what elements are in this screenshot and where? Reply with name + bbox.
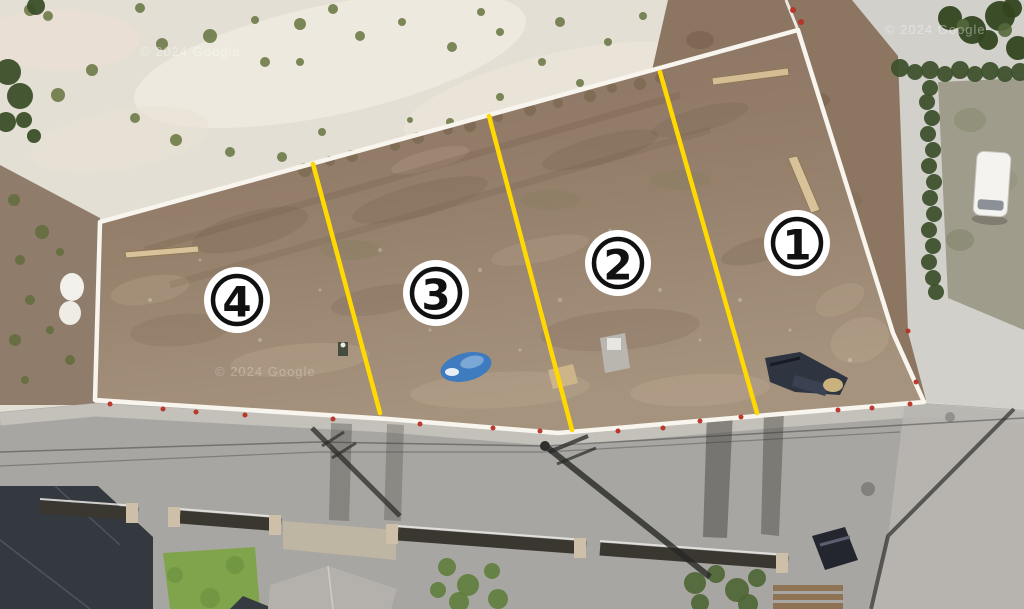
aerial-photo-canvas: 1 2 3 4 © 2024 Google © 2024 Google © 20… <box>0 0 1024 609</box>
google-watermark: © 2024 Google <box>885 22 986 37</box>
plot-marker-4: 4 <box>204 267 270 333</box>
plot-marker-1-label: 1 <box>782 221 811 270</box>
google-watermark: © 2024 Google <box>215 364 316 379</box>
wood-deck <box>773 585 843 609</box>
plot-marker-1: 1 <box>764 210 830 276</box>
plot-marker-3: 3 <box>403 260 469 326</box>
manhole <box>861 482 875 496</box>
google-watermark: © 2024 Google <box>140 44 241 59</box>
plot-marker-3-label: 3 <box>421 271 450 320</box>
plot-marker-2-label: 2 <box>603 241 632 290</box>
small-equipment <box>338 342 348 356</box>
manhole <box>945 412 955 422</box>
plot-marker-2: 2 <box>585 230 651 296</box>
plot-marker-4-label: 4 <box>222 278 251 327</box>
concrete-pad <box>600 333 630 373</box>
white-ground-object <box>59 301 81 325</box>
road <box>0 402 1024 609</box>
white-ground-object <box>60 273 84 301</box>
satellite-image: 1 2 3 4 © 2024 Google © 2024 Google © 20… <box>0 0 1024 609</box>
